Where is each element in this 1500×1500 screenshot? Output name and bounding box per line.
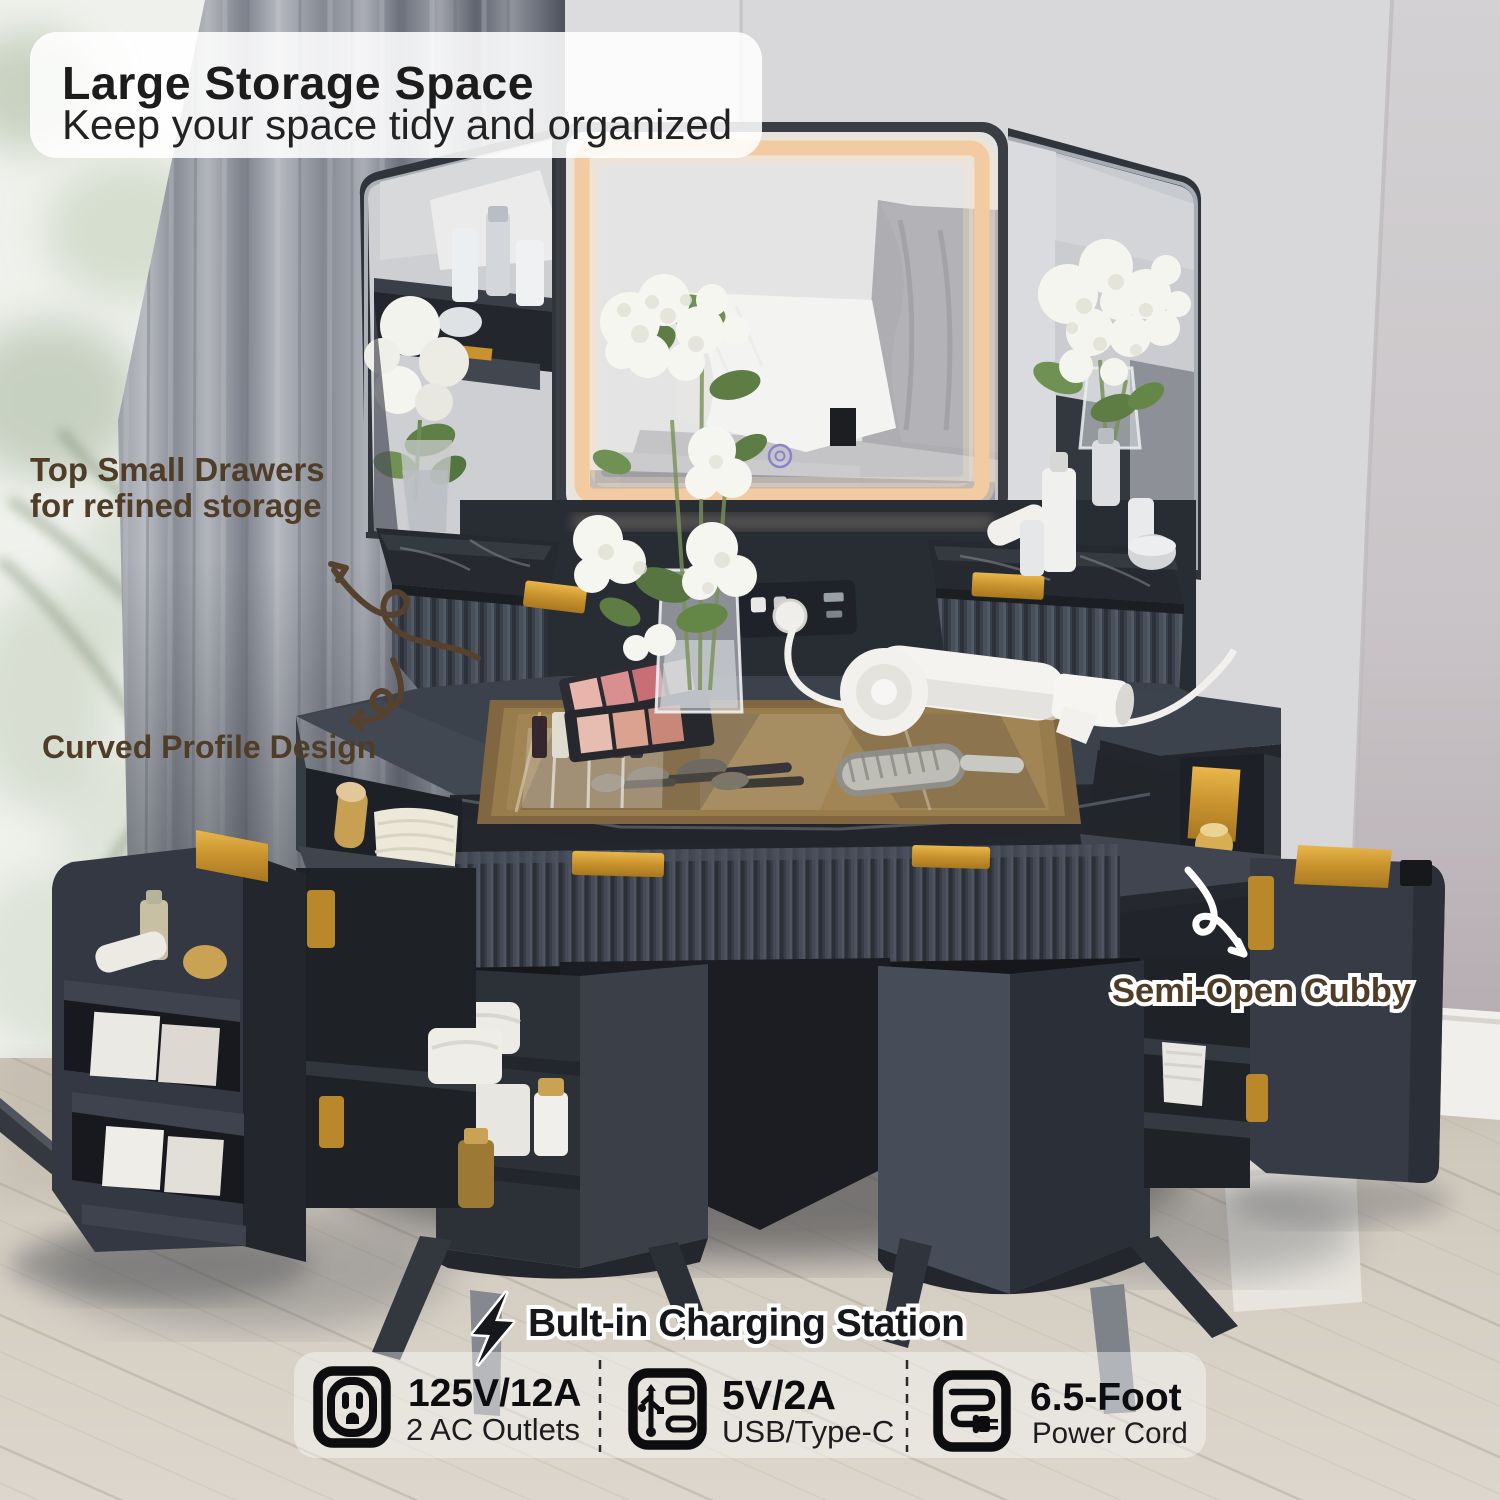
- svg-text:Semi-Open Cubby: Semi-Open Cubby: [1112, 972, 1411, 1010]
- svg-text:Bult-in Charging Station: Bult-in Charging Station: [528, 1302, 964, 1345]
